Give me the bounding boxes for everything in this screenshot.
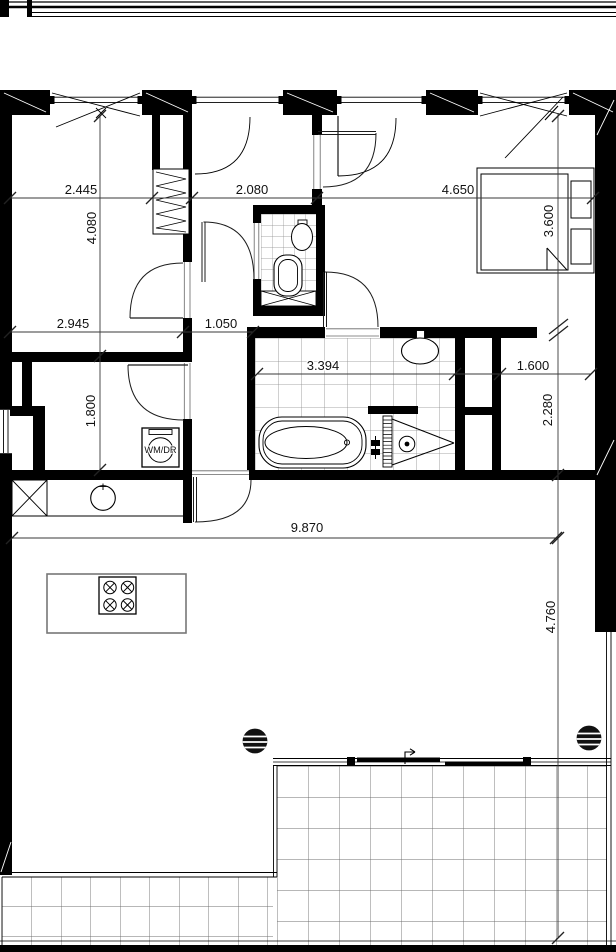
- duct-shaft: [153, 169, 189, 234]
- wc-hand-basin: [292, 224, 313, 251]
- washer-dryer-label: WM/DR: [144, 445, 177, 455]
- dim-4760: 4.760: [543, 601, 558, 634]
- column: [243, 729, 268, 754]
- dim-2080: 2.080: [236, 182, 269, 197]
- dim-1800: 1.800: [83, 395, 98, 428]
- sliding-door-panel: [445, 762, 524, 767]
- column: [577, 726, 602, 751]
- dim-2945: 2.945: [57, 316, 90, 331]
- dim-2280: 2.280: [540, 394, 555, 427]
- dim-3600: 3.600: [541, 205, 556, 238]
- nightstand: [571, 229, 591, 264]
- kitchen-counter: [12, 480, 185, 516]
- dim-4650: 4.650: [442, 182, 475, 197]
- kitchen-island: [47, 574, 186, 633]
- dim-4080: 4.080: [84, 212, 99, 245]
- floor-plan: 2.445 2.080 4.650 2.945 1.050 3.394 1.60…: [0, 0, 616, 952]
- floor-plan-drawing: 2.445 2.080 4.650 2.945 1.050 3.394 1.60…: [0, 0, 616, 952]
- dim-1600: 1.600: [517, 358, 550, 373]
- story-above-outline: [0, 0, 616, 17]
- washbasin: [402, 338, 439, 364]
- dim-1050: 1.050: [205, 316, 238, 331]
- dim-2445: 2.445: [65, 182, 98, 197]
- dim-9870: 9.870: [291, 520, 324, 535]
- nightstand: [571, 181, 591, 218]
- sliding-door-panel: [357, 758, 440, 763]
- terrace-tiles: [277, 766, 607, 945]
- columns: [241, 726, 603, 754]
- terrace-tiles-left: [2, 877, 273, 945]
- dim-3394: 3.394: [307, 358, 340, 373]
- bed: [477, 168, 594, 273]
